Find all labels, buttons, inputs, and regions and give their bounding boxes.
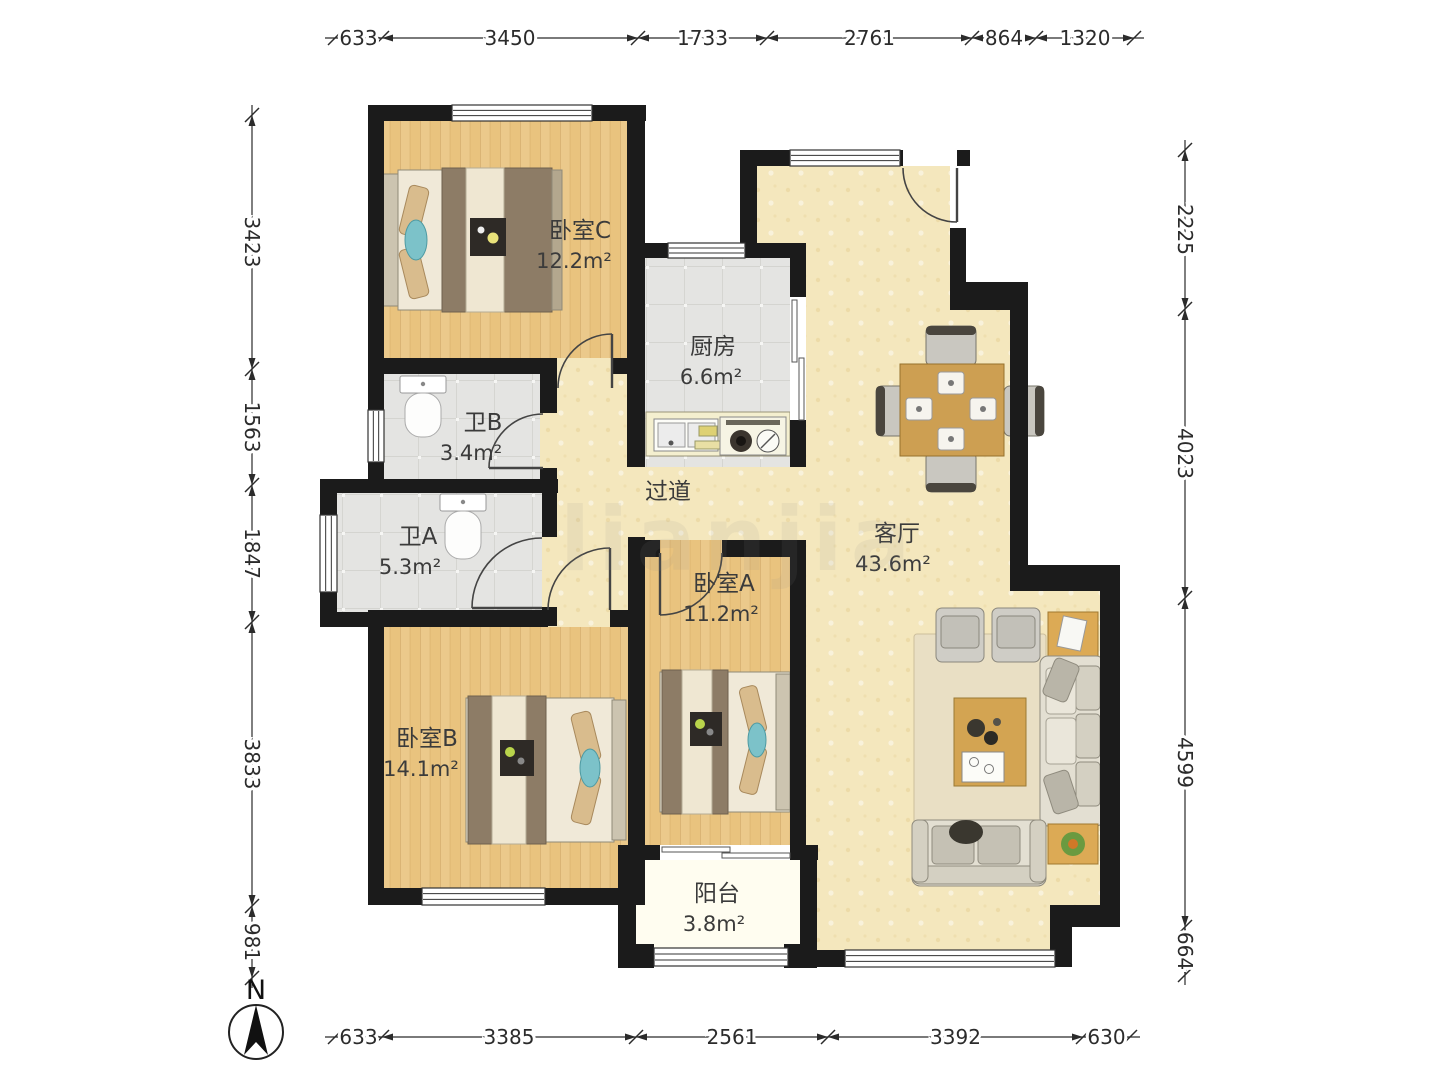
room-area-bedroom-b: 14.1m² (383, 757, 459, 781)
dimension-label: 3423 (240, 217, 264, 268)
balcony-sliding-door (660, 845, 790, 860)
dimension-label: 4599 (1173, 737, 1197, 788)
bedroom-b-doorway-floor (548, 610, 610, 628)
wall-segment (740, 150, 757, 258)
bed-icon-bedroom-b (466, 696, 626, 844)
room-area-bedroom-c: 12.2m² (536, 249, 612, 273)
toilet-icon-bathroom-b (400, 376, 446, 437)
window-icon (668, 243, 745, 258)
dimensions-left: 3423156318473833981 (240, 105, 264, 988)
room-label-kitchen: 厨房 (690, 334, 736, 360)
bed-icon-bedroom-c (383, 168, 562, 312)
dimension-label: 3450 (485, 26, 536, 50)
sofa-icon (1040, 656, 1104, 826)
wall-segment (368, 610, 548, 627)
dimension-label: 864 (985, 26, 1023, 50)
wall-segment (618, 944, 654, 968)
room-area-bathroom-a: 5.3m² (379, 555, 441, 579)
dimension-label: 664 (1173, 932, 1197, 970)
sofa-set (912, 608, 1104, 886)
window-icon (654, 948, 788, 966)
room-label-bedroom-c: 卧室C (549, 218, 611, 244)
wall-segment (1010, 282, 1028, 577)
room-area-balcony: 3.8m² (683, 912, 745, 936)
bathroom-a-floor (337, 493, 542, 612)
entry-door-opening (903, 150, 957, 166)
dimension-label: 1320 (1060, 26, 1111, 50)
wall-segment (320, 479, 558, 493)
room-area-bedroom-a: 11.2m² (683, 602, 759, 626)
window-icon (368, 410, 384, 462)
dimension-label: 1847 (240, 528, 264, 579)
dimension-label: 1563 (240, 402, 264, 453)
window-icon (790, 150, 900, 166)
compass: N (229, 975, 283, 1059)
compass-north-label: N (246, 975, 266, 1006)
room-label-bedroom-b: 卧室B (396, 726, 458, 752)
dimension-label: 3833 (240, 739, 264, 790)
window-icon (320, 515, 337, 592)
coffee-table-icon (954, 698, 1026, 786)
dimension-label: 630 (1087, 1025, 1125, 1049)
dimension-label: 4023 (1173, 428, 1197, 479)
toilet-icon-bathroom-a (440, 494, 486, 559)
side-table-icon (1048, 612, 1098, 656)
watermark: lianjia (560, 488, 918, 591)
wall-segment (627, 105, 645, 467)
room-label-balcony: 阳台 (694, 881, 740, 907)
wall-segment (1100, 565, 1120, 910)
wall-segment (540, 358, 557, 413)
dimensions-bottom: 633338525613392630 (325, 1025, 1140, 1049)
dimension-label: 3385 (484, 1025, 535, 1049)
wall-segment (368, 612, 384, 905)
loveseat-icon (912, 820, 1046, 886)
dimension-label: 633 (339, 26, 377, 50)
wall-segment (612, 358, 645, 374)
kitchen-counter (646, 412, 790, 456)
dimension-label: 633 (339, 1025, 377, 1049)
dimension-label: 2225 (1173, 204, 1197, 255)
wall-segment (784, 944, 817, 968)
dimension-label: 981 (240, 923, 264, 961)
window-icon (422, 888, 545, 905)
room-area-kitchen: 6.6m² (680, 365, 742, 389)
window-icon (452, 105, 592, 121)
dimensions-top: 6333450173327618641320 (325, 26, 1144, 50)
dimensions-right: 222540234599664 (1173, 140, 1197, 985)
room-label-bathroom-a: 卫A (399, 524, 438, 550)
room-label-bathroom-b: 卫B (464, 410, 503, 436)
bed-icon-bedroom-a (660, 670, 790, 814)
plant-table-icon (1048, 824, 1098, 864)
floorplan-svg: 卧室C 12.2m² 厨房 6.6m² 卫B 3.4m² 卫A 5.3m² 过道… (0, 0, 1440, 1080)
wall-segment (368, 358, 548, 374)
room-area-bathroom-b: 3.4m² (440, 441, 502, 465)
dimension-label: 2561 (707, 1025, 758, 1049)
kitchen-sliding-door (790, 297, 806, 420)
wall-segment (542, 479, 557, 537)
dimension-label: 1733 (677, 26, 728, 50)
floorplan-canvas: 卧室C 12.2m² 厨房 6.6m² 卫B 3.4m² 卫A 5.3m² 过道… (0, 0, 1440, 1080)
dimension-label: 2761 (844, 26, 895, 50)
dimension-label: 3392 (930, 1025, 981, 1049)
wall-segment (540, 468, 557, 479)
window-icon (845, 950, 1055, 967)
